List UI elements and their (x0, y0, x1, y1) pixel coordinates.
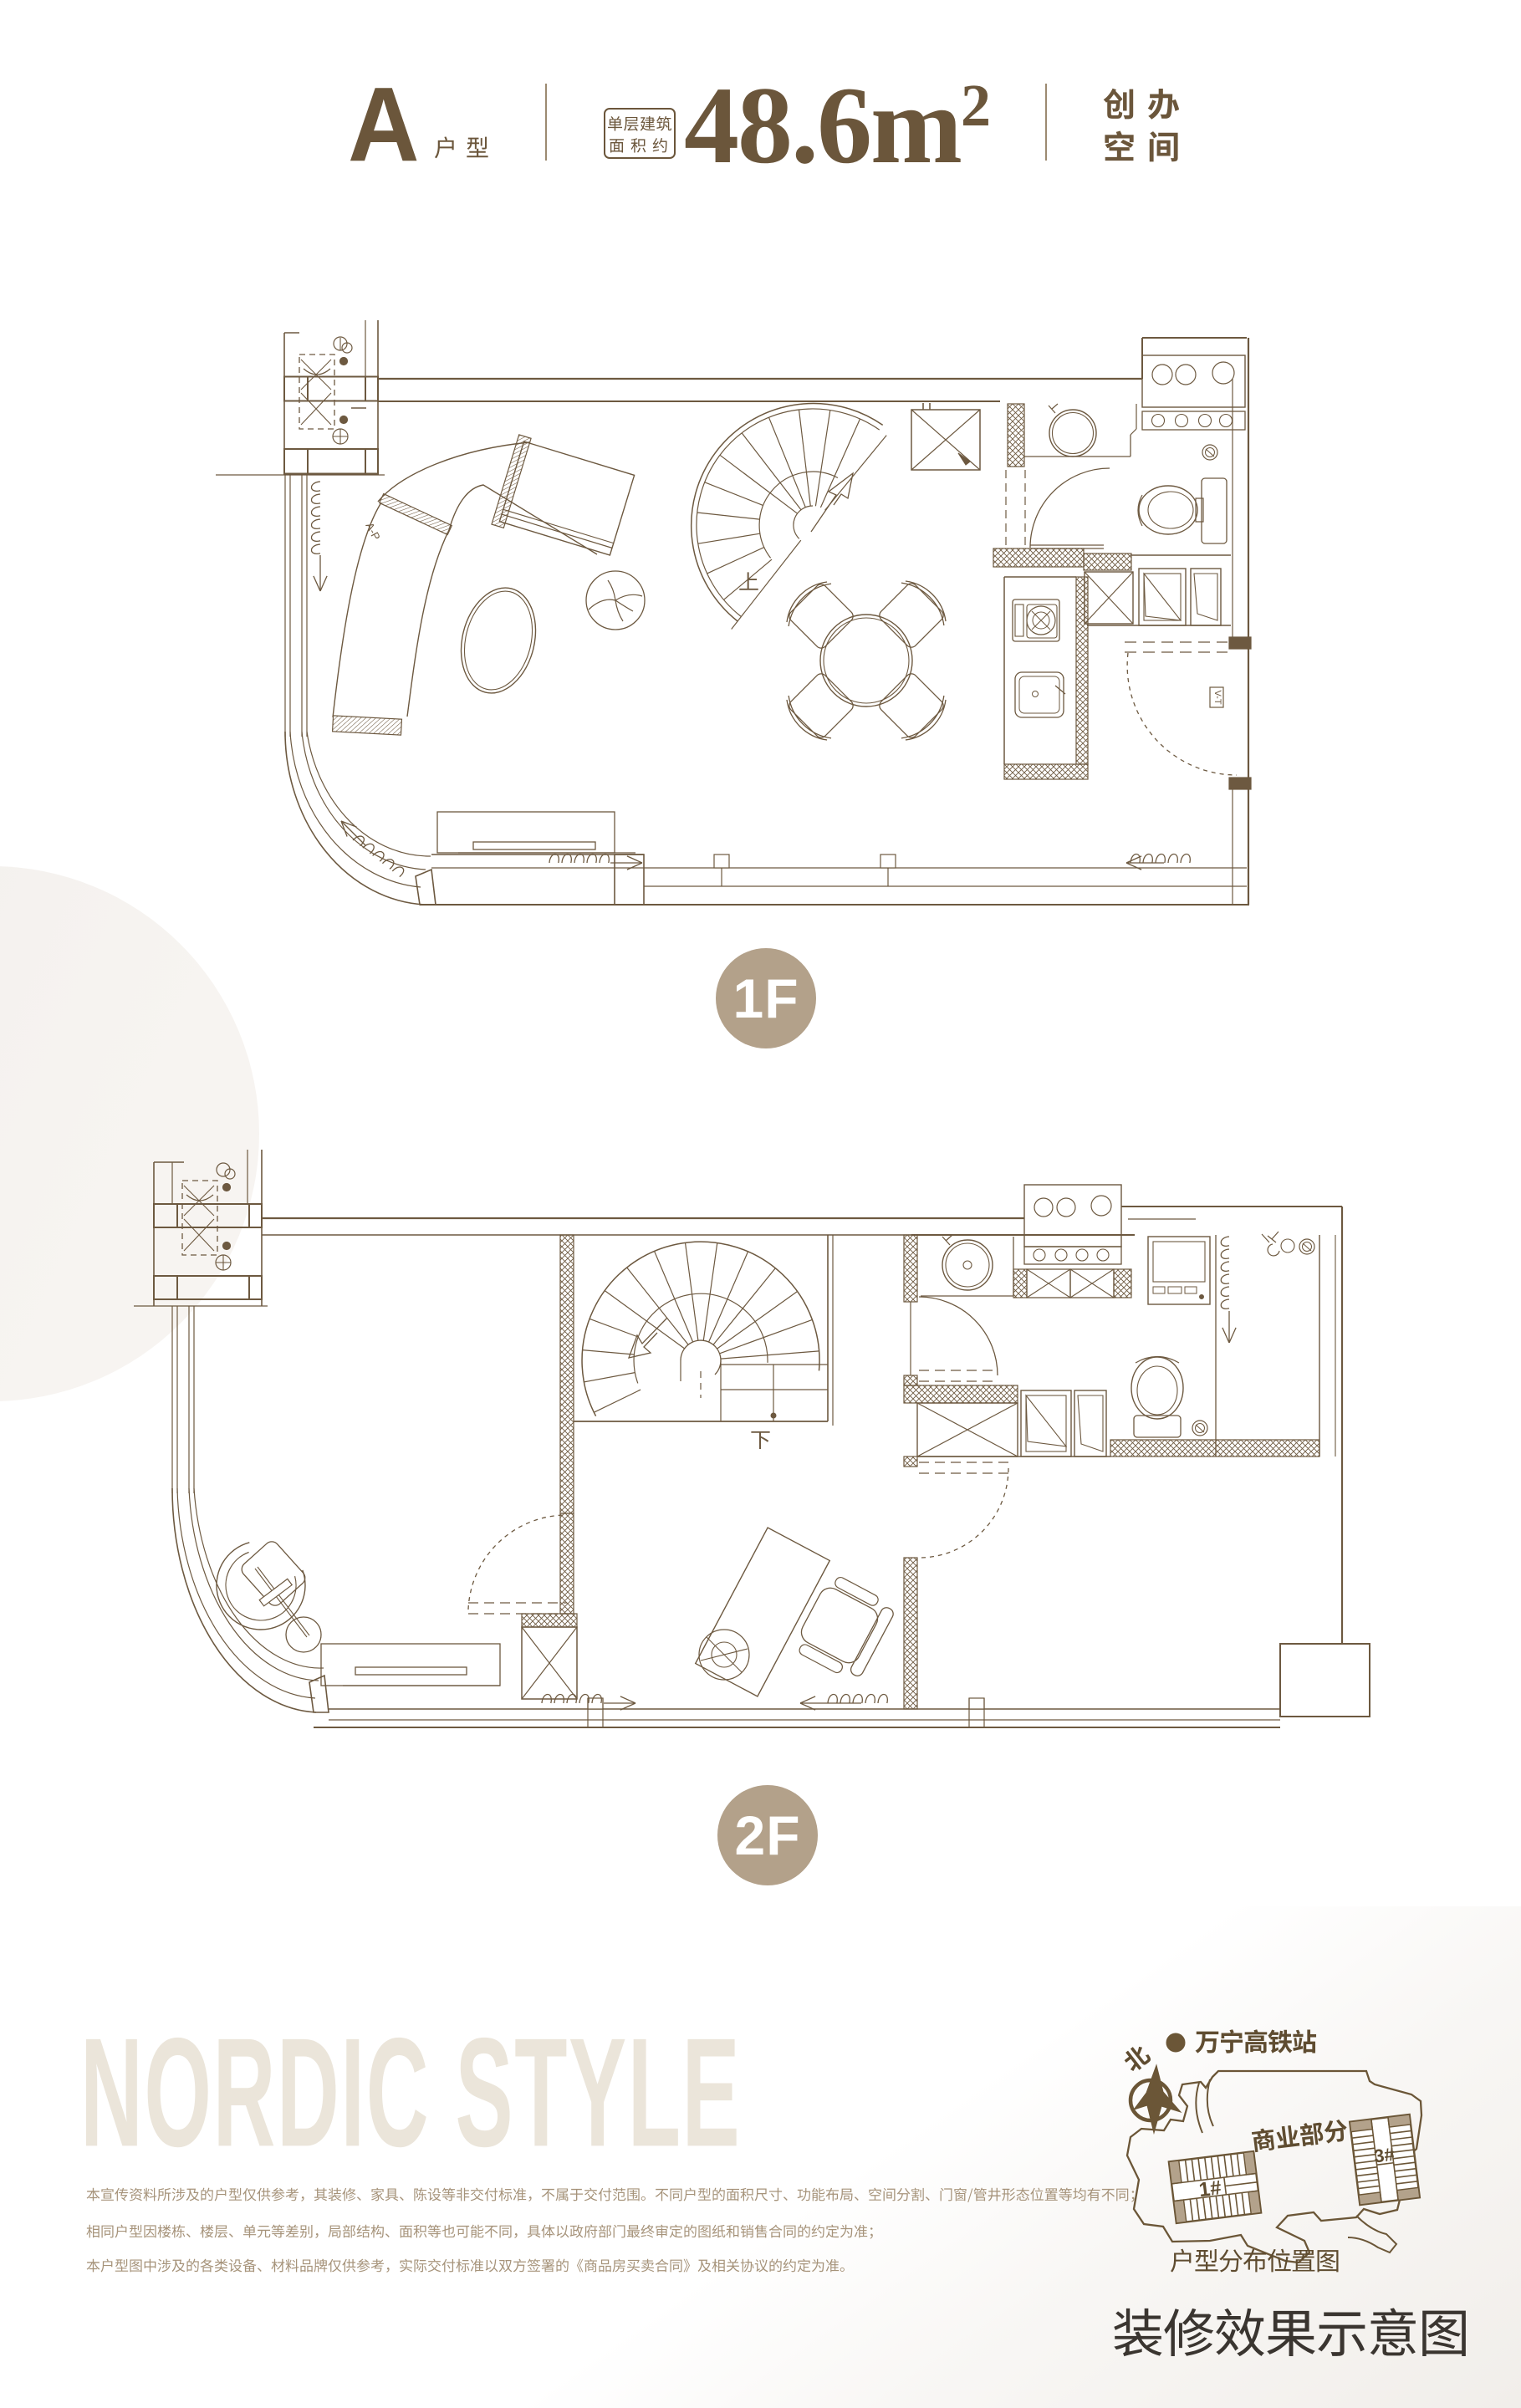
svg-text:1#: 1# (1197, 2176, 1222, 2201)
svg-text:3#: 3# (1373, 2144, 1396, 2167)
svg-text:V-T: V-T (1212, 690, 1222, 704)
svg-text:A-P: A-P (363, 520, 382, 542)
